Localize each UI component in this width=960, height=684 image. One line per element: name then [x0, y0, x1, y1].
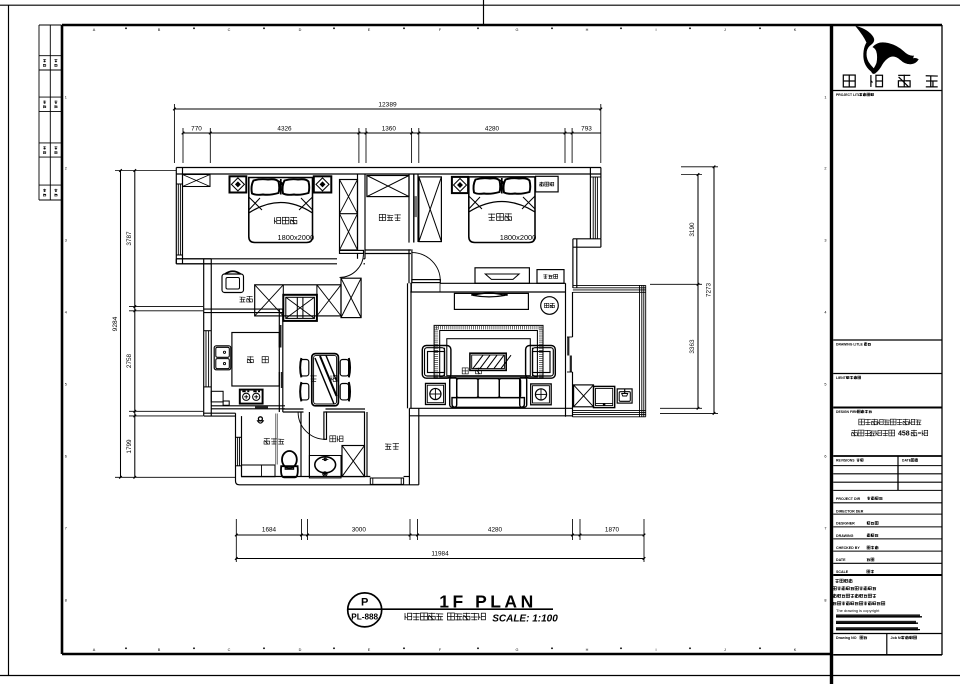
- svg-text:1: 1: [824, 96, 826, 100]
- svg-text:Drawing NO: Drawing NO: [836, 636, 857, 640]
- svg-text:1: 1: [65, 96, 67, 100]
- svg-text:7: 7: [824, 527, 826, 531]
- svg-text:1800x2000: 1800x2000: [278, 233, 315, 242]
- svg-text:8: 8: [824, 599, 826, 603]
- svg-text:12389: 12389: [378, 101, 397, 108]
- svg-text:8: 8: [65, 599, 67, 603]
- svg-text:4280: 4280: [488, 527, 503, 534]
- svg-text:B: B: [158, 648, 161, 652]
- svg-text:E: E: [368, 28, 371, 32]
- svg-text:793: 793: [581, 125, 592, 132]
- svg-text:LIENT: LIENT: [836, 376, 847, 380]
- svg-text:1360: 1360: [382, 125, 397, 132]
- svg-text:4326: 4326: [277, 125, 292, 132]
- svg-text:G: G: [516, 648, 519, 652]
- svg-text:DRAWING: DRAWING: [836, 534, 854, 538]
- svg-text:5: 5: [824, 383, 826, 387]
- svg-text:C: C: [228, 648, 231, 652]
- svg-text:A: A: [93, 648, 96, 652]
- svg-text:I: I: [655, 648, 656, 652]
- svg-text:I: I: [655, 28, 656, 32]
- svg-text:A: A: [93, 28, 96, 32]
- svg-text:PROJECT DIR: PROJECT DIR: [836, 497, 861, 501]
- svg-text:CHECKED BY: CHECKED BY: [836, 546, 860, 550]
- svg-text:3: 3: [824, 239, 826, 243]
- svg-text:E: E: [368, 648, 371, 652]
- svg-text:4: 4: [824, 311, 826, 315]
- svg-text:1870: 1870: [605, 527, 620, 534]
- svg-text:2: 2: [65, 167, 67, 171]
- svg-text:11984: 11984: [431, 550, 449, 557]
- svg-text:4: 4: [65, 311, 67, 315]
- svg-text:9284: 9284: [112, 316, 119, 331]
- svg-text:G: G: [516, 28, 519, 32]
- svg-text:7: 7: [65, 527, 67, 531]
- svg-text:5: 5: [65, 383, 67, 387]
- svg-text:1F PLAN: 1F PLAN: [439, 592, 536, 612]
- svg-text:The drawing is copyright: The drawing is copyright: [836, 608, 880, 613]
- svg-text:770: 770: [191, 125, 202, 132]
- svg-text:H: H: [586, 28, 589, 32]
- svg-text:1799: 1799: [126, 439, 133, 454]
- svg-text:3787: 3787: [126, 231, 133, 246]
- svg-text:DRAWING LITLE: DRAWING LITLE: [836, 342, 863, 346]
- svg-text:458: 458: [898, 431, 910, 438]
- svg-text:7273: 7273: [705, 282, 712, 297]
- svg-text:DATE: DATE: [902, 458, 912, 462]
- svg-text:K: K: [794, 648, 797, 652]
- svg-text:J: J: [724, 648, 726, 652]
- svg-text:6: 6: [824, 455, 826, 459]
- svg-text:6: 6: [65, 455, 67, 459]
- svg-text:2758: 2758: [126, 353, 133, 368]
- svg-text:SCALE: 1:100: SCALE: 1:100: [492, 614, 558, 625]
- svg-text:K: K: [794, 28, 797, 32]
- svg-text:4280: 4280: [485, 125, 500, 132]
- svg-text:PROJECT LITLE: PROJECT LITLE: [836, 93, 863, 97]
- svg-text:D: D: [299, 648, 302, 652]
- svg-text:B: B: [158, 28, 161, 32]
- svg-text:PL-888: PL-888: [351, 613, 378, 622]
- svg-text:DIRECTOR DER: DIRECTOR DER: [836, 509, 864, 513]
- svg-text:H: H: [586, 648, 589, 652]
- svg-text:3363: 3363: [689, 339, 696, 354]
- svg-text:DESIGN FIRN: DESIGN FIRN: [836, 410, 858, 414]
- svg-text:C: C: [228, 28, 231, 32]
- svg-text:3190: 3190: [689, 222, 696, 237]
- svg-text:DATE: DATE: [836, 558, 846, 562]
- svg-text:DESIGNER: DESIGNER: [836, 522, 855, 526]
- svg-text:1800x2000: 1800x2000: [500, 233, 537, 242]
- svg-text:P: P: [361, 597, 368, 609]
- svg-text:3: 3: [65, 239, 67, 243]
- svg-text:REVISIONS: REVISIONS: [836, 458, 855, 462]
- svg-text:SCALE: SCALE: [836, 570, 849, 574]
- svg-text:2: 2: [824, 167, 826, 171]
- svg-text:D: D: [299, 28, 302, 32]
- svg-text:3000: 3000: [352, 527, 367, 534]
- svg-text:J: J: [724, 28, 726, 32]
- svg-text:1684: 1684: [262, 527, 277, 534]
